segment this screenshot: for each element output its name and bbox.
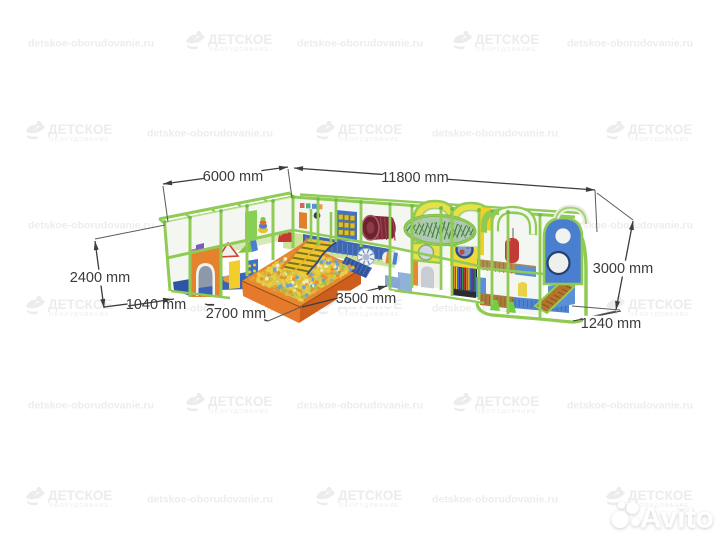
svg-text:detskoe-oborudovanie.ru: detskoe-oborudovanie.ru bbox=[147, 128, 273, 140]
svg-text:3000 mm: 3000 mm bbox=[593, 261, 653, 277]
svg-text:ДЕТСКОЕ: ДЕТСКОЕ bbox=[48, 122, 112, 137]
svg-text:ДЕТСКОЕ: ДЕТСКОЕ bbox=[628, 297, 692, 312]
svg-text:Avito: Avito bbox=[640, 502, 714, 535]
svg-text:ОБОРУДОВАНИЕ: ОБОРУДОВАНИЕ bbox=[49, 312, 110, 318]
svg-text:detskoe-oborudovanie.ru: detskoe-oborudovanie.ru bbox=[567, 38, 693, 50]
svg-text:ОБОРУДОВАНИЕ: ОБОРУДОВАНИЕ bbox=[49, 137, 110, 143]
svg-text:detskoe-oborudovanie.ru: detskoe-oborudovanie.ru bbox=[147, 494, 273, 506]
svg-text:detskoe-oborudovanie.ru: detskoe-oborudovanie.ru bbox=[28, 38, 154, 50]
svg-text:ОБОРУДОВАНИЕ: ОБОРУДОВАНИЕ bbox=[476, 409, 537, 415]
svg-text:detskoe-oborudovanie.ru: detskoe-oborudovanie.ru bbox=[297, 38, 423, 50]
svg-text:detskoe-oborudovanie.ru: detskoe-oborudovanie.ru bbox=[567, 400, 693, 412]
svg-text:ДЕТСКОЕ: ДЕТСКОЕ bbox=[475, 32, 539, 47]
svg-text:ОБОРУДОВАНИЕ: ОБОРУДОВАНИЕ bbox=[209, 409, 270, 415]
svg-text:detskoe-oborudovanie.ru: detskoe-oborudovanie.ru bbox=[432, 128, 558, 140]
svg-text:ДЕТСКОЕ: ДЕТСКОЕ bbox=[475, 394, 539, 409]
svg-text:detskoe-oborudovanie.ru: detskoe-oborudovanie.ru bbox=[297, 400, 423, 412]
svg-text:ОБОРУДОВАНИЕ: ОБОРУДОВАНИЕ bbox=[209, 47, 270, 53]
svg-text:ДЕТСКОЕ: ДЕТСКОЕ bbox=[628, 122, 692, 137]
svg-text:ОБОРУДОВАНИЕ: ОБОРУДОВАНИЕ bbox=[476, 47, 537, 53]
svg-text:ОБОРУДОВАНИЕ: ОБОРУДОВАНИЕ bbox=[49, 503, 110, 509]
svg-text:ДЕТСКОЕ: ДЕТСКОЕ bbox=[338, 122, 402, 137]
svg-text:ОБОРУДОВАНИЕ: ОБОРУДОВАНИЕ bbox=[339, 312, 400, 318]
svg-text:ДЕТСКОЕ: ДЕТСКОЕ bbox=[48, 488, 112, 503]
svg-text:ОБОРУДОВАНИЕ: ОБОРУДОВАНИЕ bbox=[339, 137, 400, 143]
svg-text:2400 mm: 2400 mm bbox=[70, 270, 130, 286]
svg-text:6000 mm: 6000 mm bbox=[203, 169, 263, 185]
svg-text:ДЕТСКОЕ: ДЕТСКОЕ bbox=[338, 488, 402, 503]
svg-text:1240 mm: 1240 mm bbox=[581, 316, 641, 332]
svg-text:ДЕТСКОЕ: ДЕТСКОЕ bbox=[208, 394, 272, 409]
svg-text:detskoe-oborudovanie.ru: detskoe-oborudovanie.ru bbox=[432, 494, 558, 506]
svg-text:11800 mm: 11800 mm bbox=[381, 170, 448, 186]
svg-text:ОБОРУДОВАНИЕ: ОБОРУДОВАНИЕ bbox=[339, 503, 400, 509]
svg-text:ОБОРУДОВАНИЕ: ОБОРУДОВАНИЕ bbox=[629, 137, 690, 143]
svg-text:2700 mm: 2700 mm bbox=[206, 306, 266, 322]
svg-text:3500 mm: 3500 mm bbox=[336, 291, 396, 307]
svg-text:detskoe-oborudovanie.ru: detskoe-oborudovanie.ru bbox=[28, 220, 154, 232]
svg-text:ДЕТСКОЕ: ДЕТСКОЕ bbox=[208, 32, 272, 47]
svg-text:detskoe-oborudovanie.ru: detskoe-oborudovanie.ru bbox=[28, 400, 154, 412]
